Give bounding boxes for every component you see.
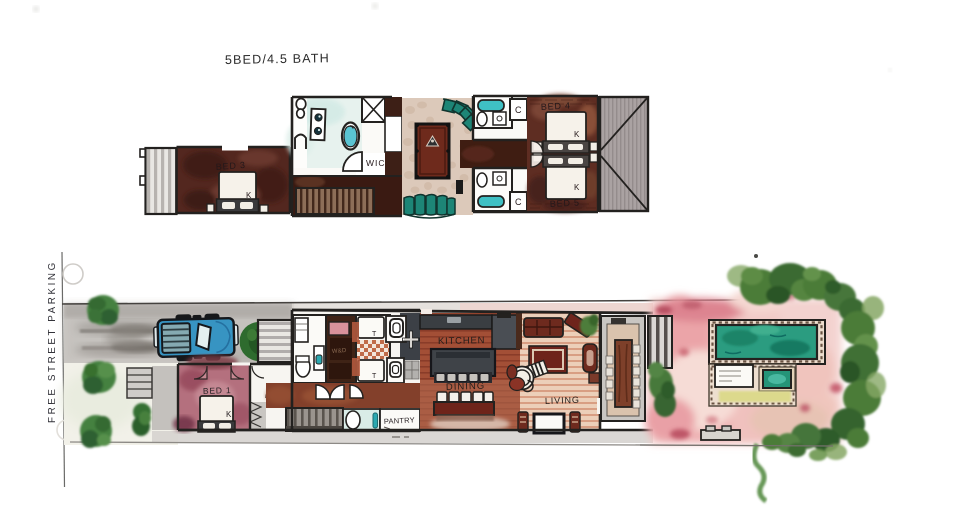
svg-text:W&D: W&D [332,348,347,355]
svg-text:BED 3: BED 3 [215,160,246,172]
svg-text:LIVING: LIVING [545,395,580,406]
svg-text:BED 5: BED 5 [550,197,580,209]
svg-text:DINING: DINING [446,381,486,393]
svg-text:K: K [246,191,252,200]
svg-text:K: K [574,183,580,192]
svg-text:KITCHEN: KITCHEN [438,335,485,347]
svg-text:T: T [372,331,377,338]
svg-text:T: T [372,373,377,380]
svg-text:BED 1: BED 1 [203,385,232,396]
svg-text:C: C [515,197,522,207]
svg-text:K: K [574,130,580,139]
svg-text:C: C [515,105,522,115]
svg-text:5BED/4.5 BATH: 5BED/4.5 BATH [225,51,330,67]
svg-text:BED 4: BED 4 [541,100,571,112]
svg-text:K: K [226,410,232,419]
svg-text:FREE STREET PARKING: FREE STREET PARKING [47,260,58,423]
svg-text:WIC: WIC [366,158,386,168]
svg-text:PANTRY: PANTRY [384,415,415,426]
